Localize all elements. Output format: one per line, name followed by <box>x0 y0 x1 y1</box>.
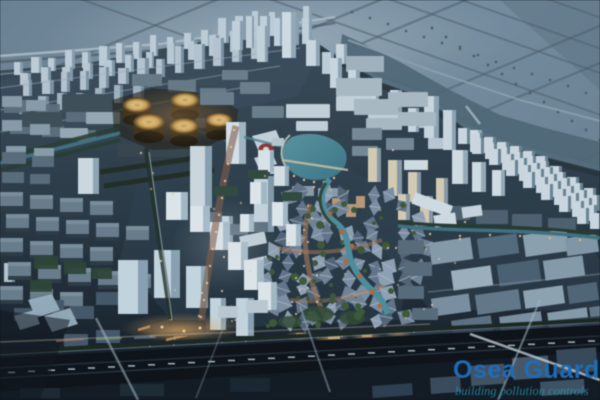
svg-text:Osea Guard: Osea Guard <box>453 356 600 384</box>
svg-text:building pollution controls: building pollution controls <box>455 384 589 398</box>
